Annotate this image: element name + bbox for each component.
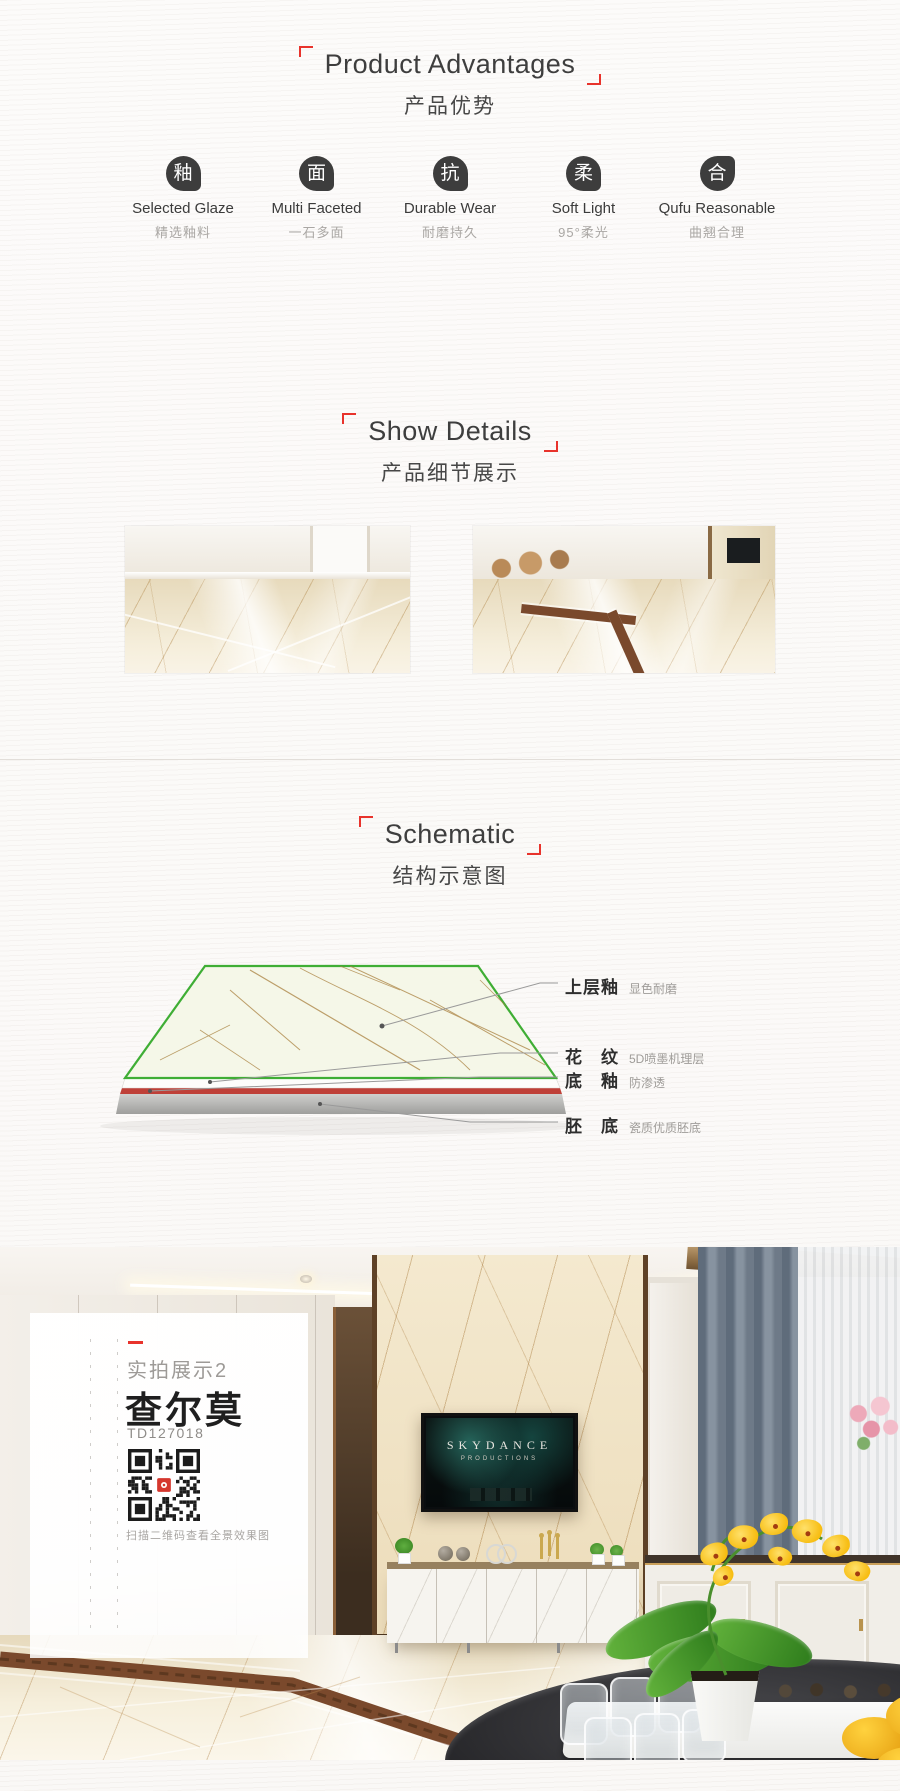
advantage-label-zh: 95°柔光 [519,222,649,241]
decor-plant-pot [592,1554,605,1565]
advantages-title-en: Product Advantages [325,49,576,79]
product-model: TD127018 [127,1425,204,1441]
details-header: Show Details 产品细节展示 [0,411,900,487]
layer-body [116,1094,566,1114]
wear-resist-icon: 抗 [433,156,468,191]
cabinet-leg [395,1643,398,1653]
schematic-title: Schematic [359,814,542,855]
corner-bracket-icon [527,844,541,855]
downlight [300,1275,312,1283]
tv-screen: SKYDANCE PRODUCTIONS [426,1418,573,1507]
decor-sphere [456,1547,470,1561]
decor-figurine [556,1537,559,1559]
product-detail-page: Product Advantages 产品优势 釉 Selected Glaze… [0,0,900,1791]
cabinet-leg [467,1643,470,1653]
section-divider [0,759,900,760]
tv-sub-text: PRODUCTIONS [426,1456,573,1462]
photo-tv [727,538,760,563]
layer-bottom-glaze [120,1088,562,1094]
surface-icon: 面 [299,156,334,191]
schematic-label-bottom-glaze: 底 釉防渗透 [565,1067,665,1092]
details-title-en: Show Details [368,416,532,446]
advantage-item-faceted: 面 Multi Faceted 一石多面 [252,156,382,241]
flower-vase [848,1395,900,1457]
detail-photo-floor-closeup [125,526,410,673]
schematic-label-pattern: 花 纹5D喷墨机理层 [565,1043,704,1068]
advantage-label-en: Multi Faceted [252,200,382,217]
schematic-title-en: Schematic [385,819,516,849]
decor-plant-pot [398,1553,411,1564]
decor-plant [395,1538,413,1554]
layer-top-glaze [125,966,556,1078]
layer-name: 花 纹 [565,1048,619,1067]
advantages-row: 釉 Selected Glaze 精选釉料 面 Multi Faceted 一石… [118,156,782,241]
corner-bracket-icon [299,46,313,57]
advantages-title: Product Advantages [299,44,602,85]
advantage-label-zh: 曲翘合理 [652,222,782,241]
advantages-title-zh: 产品优势 [0,90,900,120]
decor-figurine [548,1534,551,1556]
flatness-icon: 合 [700,156,735,191]
detail-photo-room [473,526,775,673]
tv-brand-text: SKYDANCE [426,1438,573,1453]
product-info-card: 实拍展示2 查尔莫 TD127018 扫描二维码查看全景效果图 [30,1313,308,1658]
layer-desc: 5D喷墨机理层 [629,1052,704,1066]
cabinet-leg [557,1643,560,1653]
corner-bracket-icon [342,413,356,424]
layer-name: 胚 底 [565,1117,619,1136]
doorway [333,1307,377,1642]
decor-wire-ornament [497,1544,517,1564]
door-handle [859,1619,863,1631]
corner-bracket-icon [544,441,558,452]
advantage-label-en: Durable Wear [385,200,515,217]
schematic-title-zh: 结构示意图 [0,860,900,890]
advantage-label-zh: 精选釉料 [118,222,248,241]
decor-figurine [540,1537,543,1559]
details-title: Show Details [342,411,558,452]
advantage-item-flatness: 合 Qufu Reasonable 曲翘合理 [652,156,782,241]
soft-light-icon: 柔 [566,156,601,191]
schematic-label-body: 胚 底瓷质优质胚底 [565,1112,701,1137]
advantages-header: Product Advantages 产品优势 [0,44,900,120]
schematic-label-top-glaze: 上层釉显色耐磨 [565,973,677,998]
window-frame [650,1283,702,1595]
advantage-label-en: Selected Glaze [118,200,248,217]
red-dash-decoration [128,1341,143,1344]
advantage-item-softlight: 柔 Soft Light 95°柔光 [519,156,649,241]
details-title-zh: 产品细节展示 [0,457,900,487]
decor-stones [775,1683,900,1699]
showcase-tag: 实拍展示2 [127,1354,228,1383]
tv: SKYDANCE PRODUCTIONS [421,1413,578,1512]
advantage-label-zh: 一石多面 [252,222,382,241]
layer-name: 上层釉 [565,978,619,997]
advantage-label-zh: 耐磨持久 [385,222,515,241]
vertical-ruler-decoration [90,1339,120,1631]
corner-bracket-icon [587,74,601,85]
corner-bracket-icon [359,816,373,827]
glass-cup [584,1717,632,1760]
advantage-item-glaze: 釉 Selected Glaze 精选釉料 [118,156,248,241]
advantage-label-en: Qufu Reasonable [652,200,782,217]
tv-screen-frames [470,1488,532,1501]
layer-desc: 防渗透 [629,1076,665,1090]
glass-cup [634,1713,680,1760]
photo-marble-floor [473,579,775,673]
advantage-item-wear: 抗 Durable Wear 耐磨持久 [385,156,515,241]
decor-plant-pot [612,1555,625,1566]
layer-desc: 瓷质优质胚底 [629,1121,701,1135]
layer-name: 底 釉 [565,1072,619,1091]
tile-structure-diagram [0,930,900,1165]
layer-desc: 显色耐磨 [629,982,677,996]
schematic-header: Schematic 结构示意图 [0,814,900,890]
tv-cabinet [387,1562,639,1643]
advantage-label-en: Soft Light [519,200,649,217]
qr-caption: 扫描二维码查看全景效果图 [126,1527,270,1543]
decor-sphere [438,1546,453,1561]
glaze-icon: 釉 [166,156,201,191]
qr-code [128,1449,200,1521]
